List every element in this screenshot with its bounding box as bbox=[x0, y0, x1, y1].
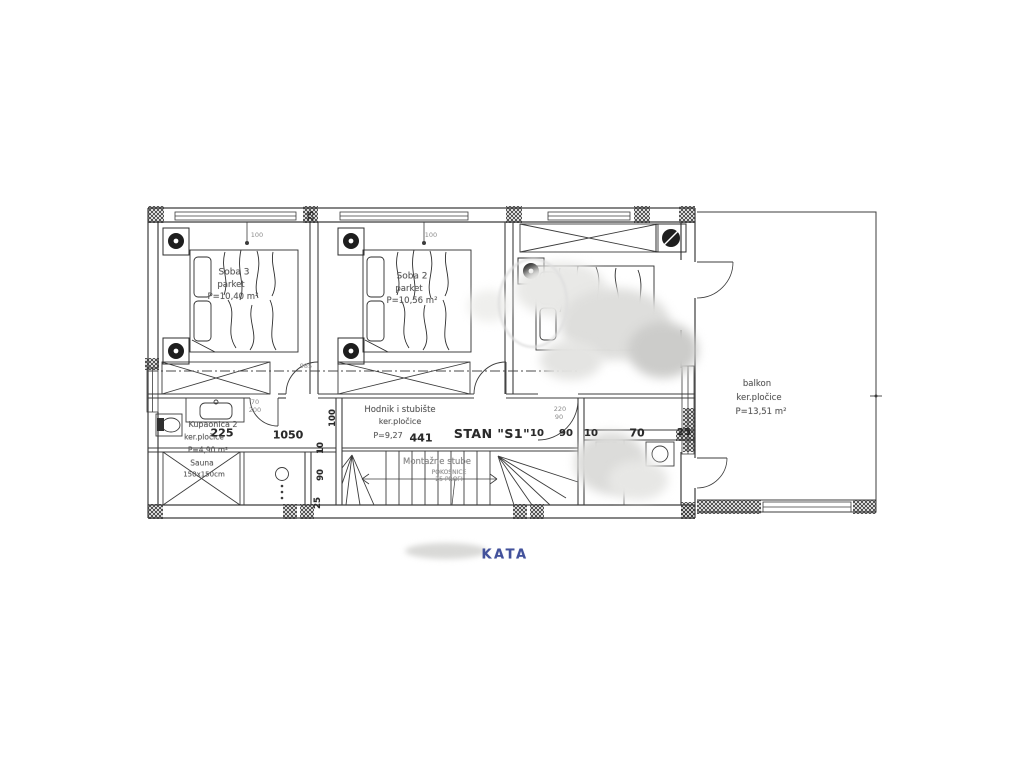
stairs-label: Montažne stube bbox=[403, 458, 471, 467]
dim-v90: 90 bbox=[317, 469, 326, 481]
room-label-soba3: Soba 3 bbox=[218, 269, 249, 278]
dim-441: 441 bbox=[410, 433, 433, 444]
door-tag-room-height: 220 bbox=[554, 406, 566, 413]
dim-window-100a: 100 bbox=[251, 232, 263, 239]
floorplan-drawing bbox=[0, 0, 1024, 768]
dim-window-100b: 100 bbox=[425, 232, 437, 239]
watermark-smudge bbox=[608, 460, 668, 500]
room-label-sauna: Sauna bbox=[190, 459, 213, 467]
bottom-wall bbox=[148, 504, 695, 519]
dim-225: 225 bbox=[211, 428, 234, 439]
room-label-hodnik: Hodnik i stubište bbox=[364, 406, 435, 415]
dim-90a: 90 bbox=[559, 429, 573, 439]
room-label-soba2: Soba 2 bbox=[396, 273, 427, 282]
room-label-balkon: balkon bbox=[743, 380, 771, 389]
dim-70: 70 bbox=[629, 428, 644, 439]
door-tag-room-width: 90 bbox=[555, 414, 563, 421]
watermark-smudge bbox=[405, 543, 487, 559]
room-floor-soba2: parket bbox=[395, 285, 422, 294]
room-area-hodnik: P=9,27 bbox=[373, 432, 402, 440]
dim-10a: 10 bbox=[530, 429, 544, 439]
room-area-kupaonica2: P=4,90 m² bbox=[188, 446, 228, 454]
room-area-soba2: P=10,56 m² bbox=[387, 297, 438, 306]
sauna-size: 150x150cm bbox=[183, 472, 225, 479]
room-floor-balkon: ker.pločice bbox=[736, 394, 781, 403]
floorplan-sheet: Soba 3 parket P=10,40 m² Soba 2 parket P… bbox=[0, 0, 1024, 768]
dim-10b: 10 bbox=[584, 429, 598, 439]
dim-25r: 25 bbox=[677, 428, 691, 438]
window-leaders bbox=[245, 222, 426, 245]
watermark-smudge bbox=[540, 340, 602, 380]
dim-985: 985 bbox=[300, 363, 312, 370]
room-area-balkon: P=13,51 m² bbox=[736, 408, 787, 417]
watermark-ghost-ring bbox=[498, 258, 568, 348]
stairs-note-2: 25 PROFI bbox=[435, 477, 462, 483]
door-tag-bath-width: 70 bbox=[251, 399, 259, 406]
dim-1050: 1050 bbox=[273, 430, 304, 441]
sheet-title: KATA bbox=[481, 549, 528, 562]
apartment-label: STAN "S1" bbox=[454, 428, 530, 441]
room-floor-hodnik: ker.pločice bbox=[379, 418, 422, 426]
balcony-outline bbox=[697, 212, 882, 514]
left-wall bbox=[145, 208, 159, 518]
watermark-smudge bbox=[628, 322, 698, 378]
dim-v25: 25 bbox=[314, 497, 323, 509]
door-tag-bath-height: 200 bbox=[249, 407, 261, 414]
room-floor-soba3: parket bbox=[217, 281, 244, 290]
top-wall bbox=[148, 206, 695, 223]
room-area-soba3: P=10,40 m² bbox=[208, 293, 259, 302]
dim-25-top: 25 bbox=[307, 211, 315, 221]
dim-v10: 10 bbox=[317, 442, 326, 454]
dim-v100: 100 bbox=[329, 409, 338, 427]
